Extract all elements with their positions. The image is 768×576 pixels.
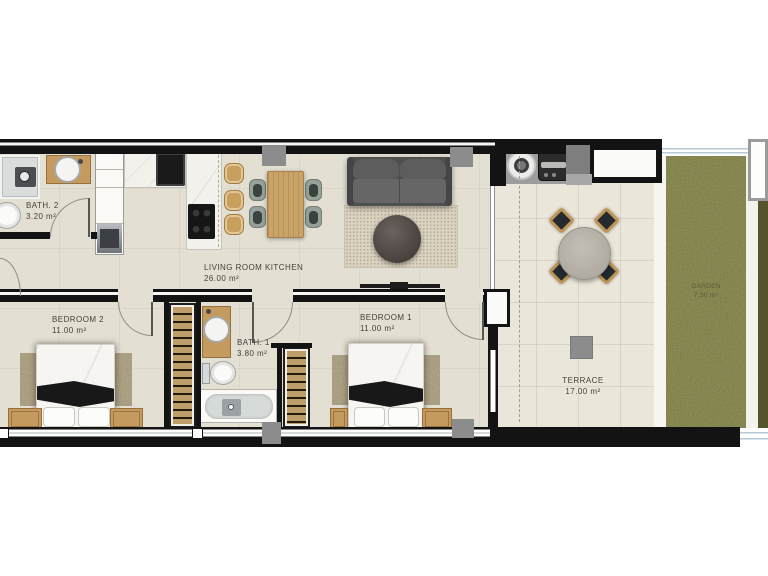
window-frame-marker	[0, 428, 9, 439]
pillar-step	[566, 174, 592, 185]
middle-wall	[0, 289, 490, 302]
sofa-back-cushion	[353, 159, 399, 179]
shower	[0, 155, 40, 199]
bathtub-faucet	[222, 399, 241, 416]
pillar	[262, 422, 281, 444]
bedroom2-door-leaf	[151, 302, 153, 336]
island-dashed-edge	[218, 155, 219, 247]
nightstand-top	[113, 411, 140, 427]
kitchen-tall-unit	[95, 152, 124, 255]
bath2-door-leaf	[88, 198, 90, 237]
terrace-door	[484, 289, 510, 327]
room-name: BEDROOM 1	[360, 312, 412, 323]
bath1-toilet	[210, 361, 236, 385]
bar-stool	[224, 214, 244, 235]
bed-pillow	[43, 407, 75, 427]
door-opening	[445, 289, 483, 302]
garden-glass-fence-bottom	[740, 429, 768, 452]
window-frame-marker	[192, 428, 203, 439]
bedroom1-door-leaf	[482, 302, 484, 340]
garden-label: GARDEN 7.50 m²	[666, 282, 746, 300]
chair-cushion	[309, 211, 318, 224]
bar-stool	[224, 190, 244, 211]
bed-pillow	[388, 407, 419, 427]
living-terrace-wall-stub	[490, 146, 506, 186]
terrace-boundary-dashed	[519, 156, 520, 422]
grass-texture-dark	[758, 200, 768, 428]
living-terrace-glass-wall	[490, 186, 495, 289]
bath1-tap	[206, 309, 211, 314]
wall-bath1-bedroom1	[277, 343, 282, 428]
bed-blanket	[349, 381, 423, 407]
room-area: 11.00 m²	[52, 325, 104, 336]
wall-bath1-stub	[271, 343, 312, 348]
bottom-wall-terrace	[490, 427, 740, 447]
bath1-label: BATH. 1 3.80 m²	[237, 337, 270, 359]
washer-drum	[514, 158, 529, 173]
faucet-knob	[228, 404, 234, 410]
wall-bedroom1-terrace-bottom	[488, 412, 498, 428]
pillar	[452, 419, 474, 438]
room-name: TERRACE	[543, 375, 623, 386]
terrace-window	[594, 150, 656, 177]
bath1-toilet-tank	[202, 363, 210, 384]
room-name: BEDROOM 2	[52, 314, 104, 325]
bedroom1-label: BEDROOM 1 11.00 m²	[360, 312, 412, 334]
bath1-sink	[203, 316, 230, 343]
kitchen-sink	[156, 153, 185, 186]
room-area: 3.20 m²	[26, 211, 59, 222]
coffee-pouf	[373, 215, 421, 263]
nightstand-top	[333, 411, 345, 427]
top-wall	[0, 139, 495, 154]
bed-bedroom2	[36, 344, 115, 428]
bottom-wall-windows	[0, 427, 490, 447]
room-name: BATH. 2	[26, 200, 59, 211]
bed-pillow	[78, 407, 110, 427]
room-area: 7.50 m²	[666, 291, 746, 300]
terrace-planter	[570, 336, 593, 359]
dining-chair	[305, 179, 322, 201]
pillar	[262, 145, 286, 166]
garden-area: GARDEN 7.50 m²	[666, 156, 746, 428]
bathtub	[200, 389, 277, 423]
neighbor-window-box	[748, 139, 768, 201]
bath2-wall-stub	[91, 232, 97, 239]
unit-shelf-line	[96, 169, 123, 170]
grill-handle	[541, 162, 566, 168]
terrace-label: TERRACE 17.00 m²	[543, 375, 623, 397]
bar-stool	[224, 163, 244, 184]
room-name: GARDEN	[666, 282, 746, 291]
chair-cushion	[309, 184, 318, 197]
seat-divider	[399, 179, 400, 203]
bedroom2-label: BEDROOM 2 11.00 m²	[52, 314, 104, 336]
sofa-seat	[353, 179, 446, 203]
grill-knob	[544, 173, 548, 177]
bed-blanket	[37, 381, 114, 407]
nightstand-top	[425, 411, 449, 427]
door-opening	[252, 289, 293, 302]
door-opening	[118, 289, 153, 302]
wardrobe-bedroom2	[169, 303, 196, 428]
bath2-wall	[0, 232, 50, 239]
bedroom1-terrace-window	[488, 350, 498, 412]
oven	[97, 224, 122, 253]
dining-table	[267, 171, 304, 238]
room-name: BATH. 1	[237, 337, 270, 348]
room-area: 11.00 m²	[360, 323, 412, 334]
bed-pillow	[354, 407, 385, 427]
washing-machine	[507, 151, 536, 180]
living-label: LIVING ROOM KITCHEN 26.00 m²	[204, 262, 303, 284]
bath2-tap	[78, 159, 83, 164]
terrace-table	[558, 227, 611, 280]
sofa	[347, 157, 452, 206]
pillar	[450, 147, 473, 167]
bed-bedroom1	[348, 343, 424, 428]
pillar	[566, 145, 590, 174]
grill-knob	[552, 173, 556, 177]
unit-shelf-line	[96, 187, 123, 188]
cooktop	[188, 204, 215, 239]
bath2-sink	[54, 156, 81, 183]
shower-head-icon	[19, 171, 30, 182]
room-area: 26.00 m²	[204, 273, 303, 284]
sofa-back-cushion	[400, 159, 446, 179]
room-area: 3.80 m²	[237, 348, 270, 359]
wall-bedroom2-wardrobe	[164, 295, 169, 428]
bath2-label: BATH. 2 3.20 m²	[26, 200, 59, 222]
oven-door	[100, 229, 119, 248]
chair-cushion	[253, 184, 262, 197]
tv-center-box	[390, 282, 408, 289]
wall-wardrobe-bath1	[196, 295, 201, 428]
room-area: 17.00 m²	[543, 386, 623, 397]
dining-chair	[249, 179, 266, 201]
terrace-garden-gap	[654, 156, 666, 428]
dining-chair	[305, 206, 322, 228]
neighbor-garden-strip	[758, 200, 768, 428]
floor-plan: GARDEN 7.50 m²	[0, 0, 768, 576]
wardrobe-bedroom1	[283, 347, 310, 428]
nightstand-top	[11, 411, 39, 427]
dining-chair	[249, 206, 266, 228]
room-name: LIVING ROOM KITCHEN	[204, 262, 303, 273]
chair-cushion	[253, 211, 262, 224]
